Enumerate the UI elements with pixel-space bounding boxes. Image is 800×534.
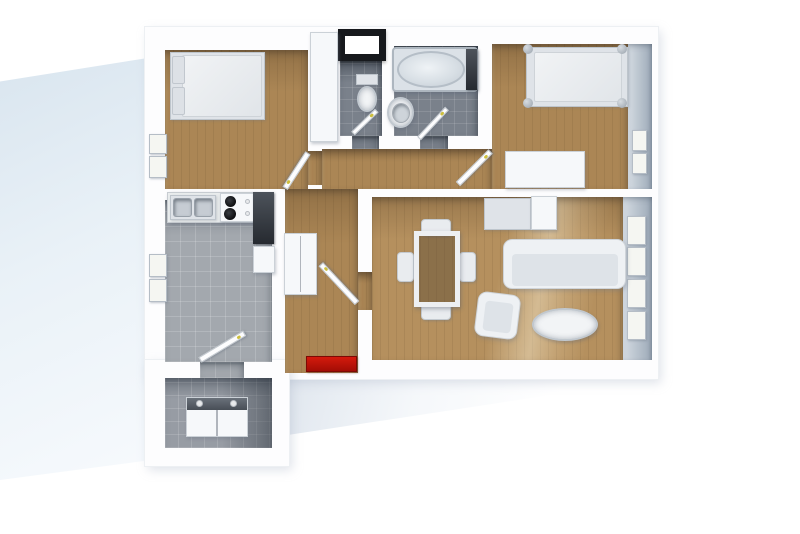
bathtub-basin — [397, 51, 465, 88]
bed2-post-1 — [523, 44, 533, 54]
bedroom1-doorway — [308, 151, 322, 185]
kitchen-dark-worktop — [253, 192, 274, 244]
kitchen-appliance — [253, 246, 275, 273]
bedroom1-window-pane-1 — [149, 134, 167, 154]
bed1-pillow-2 — [172, 87, 185, 115]
sideboard-left — [484, 198, 531, 230]
bed1-pillow-1 — [172, 56, 185, 84]
toilet-tank — [356, 74, 378, 85]
wall-closet — [310, 32, 338, 142]
bed1-mattress — [182, 55, 262, 117]
wc-doorway — [352, 136, 379, 149]
stove-burner-1 — [225, 196, 236, 207]
stove-knob-1 — [245, 199, 250, 204]
bath-sink-basin — [392, 103, 410, 123]
coffee-table — [532, 308, 598, 341]
armchair-seat — [482, 300, 513, 333]
bed2-mattress — [534, 52, 622, 102]
stove-burner-2 — [224, 208, 236, 220]
living-window-pane-2 — [627, 247, 646, 276]
living-window-pane-1 — [627, 216, 646, 245]
bed2-post-2 — [617, 44, 627, 54]
wc-window-black-frame — [338, 29, 386, 61]
laundry-doorway — [200, 362, 244, 378]
living-window-pane-3 — [627, 279, 646, 308]
kitchen-window-pane-1 — [149, 254, 167, 277]
entrance-doormat — [306, 356, 357, 372]
washer-top-cap-2 — [230, 400, 237, 407]
sideboard-right — [531, 196, 557, 230]
kitchen-sink-basin-2 — [194, 198, 213, 217]
bedroom1-window-pane-2 — [149, 156, 167, 178]
bed2-post-4 — [617, 98, 627, 108]
washer-top-cap-1 — [196, 400, 203, 407]
bedroom2-window-pane-1 — [632, 130, 647, 151]
living-window-pane-4 — [627, 311, 646, 340]
dining-table — [414, 231, 460, 307]
floor-plan — [0, 0, 800, 534]
hall-closet-divider — [300, 236, 301, 292]
kitchen-sink-basin-1 — [173, 198, 192, 217]
dining-chair-west — [397, 252, 414, 282]
exterior-panel — [0, 56, 147, 480]
kitchen-window-pane-2 — [149, 279, 167, 302]
stove-knob-2 — [245, 211, 250, 216]
bedroom2-dresser — [505, 151, 585, 188]
ground-shadow — [284, 379, 656, 435]
corridor-floor — [322, 149, 492, 189]
bathroom-doorway — [420, 136, 448, 149]
dining-chair-east — [459, 252, 476, 282]
sofa-seat — [512, 254, 618, 286]
living-doorway — [358, 272, 372, 310]
washer-dryer-divider — [216, 410, 218, 436]
bedroom2-window-pane-2 — [632, 153, 647, 174]
bathtub-fixture — [466, 49, 477, 90]
bed2-post-3 — [523, 98, 533, 108]
